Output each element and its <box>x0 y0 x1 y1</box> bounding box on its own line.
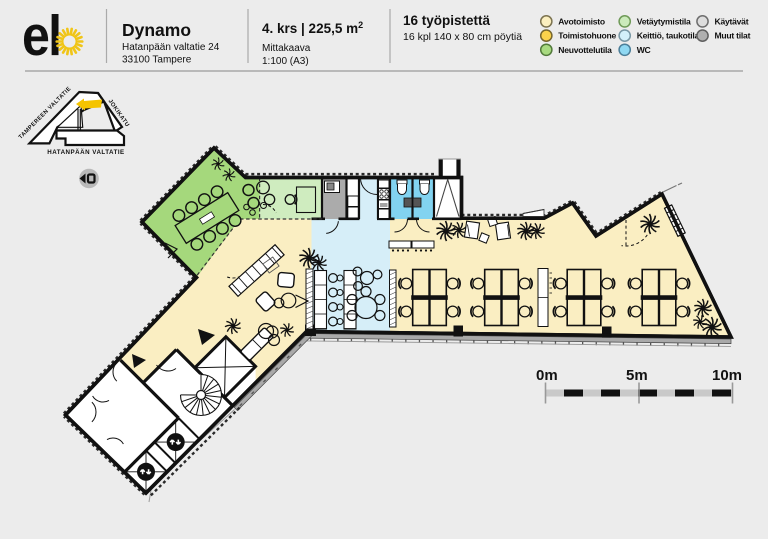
svg-text:5m: 5m <box>626 367 648 384</box>
svg-text:4. krs | 225,5 m2: 4. krs | 225,5 m2 <box>262 20 363 36</box>
svg-text:33100 Tampere: 33100 Tampere <box>122 55 192 66</box>
svg-text:16 työpistettä: 16 työpistettä <box>403 13 491 28</box>
svg-text:Vetäytymistila: Vetäytymistila <box>637 16 691 26</box>
svg-text:Käytävät: Käytävät <box>715 16 749 26</box>
svg-text:16 kpl 140 x 80 cm pöytiä: 16 kpl 140 x 80 cm pöytiä <box>403 31 522 43</box>
svg-text:Neuvottelutila: Neuvottelutila <box>558 45 612 55</box>
svg-text:10m: 10m <box>712 367 742 384</box>
svg-text:Toimistohuone: Toimistohuone <box>558 31 616 41</box>
svg-text:WC: WC <box>637 45 651 55</box>
svg-text:Keittiö, taukotilat: Keittiö, taukotilat <box>637 31 702 41</box>
svg-text:1:100 (A3): 1:100 (A3) <box>262 56 309 67</box>
svg-text:0m: 0m <box>536 367 558 384</box>
svg-text:Avotoimisto: Avotoimisto <box>558 16 605 26</box>
svg-text:Mittakaava: Mittakaava <box>262 43 311 54</box>
svg-text:Muut tilat: Muut tilat <box>715 31 751 41</box>
svg-text:HATANPÄÄN VALTATIE: HATANPÄÄN VALTATIE <box>47 149 124 156</box>
svg-text:el: el <box>22 4 60 68</box>
svg-text:Hatanpään valtatie 24: Hatanpään valtatie 24 <box>122 42 220 53</box>
svg-text:Dynamo: Dynamo <box>122 20 191 40</box>
